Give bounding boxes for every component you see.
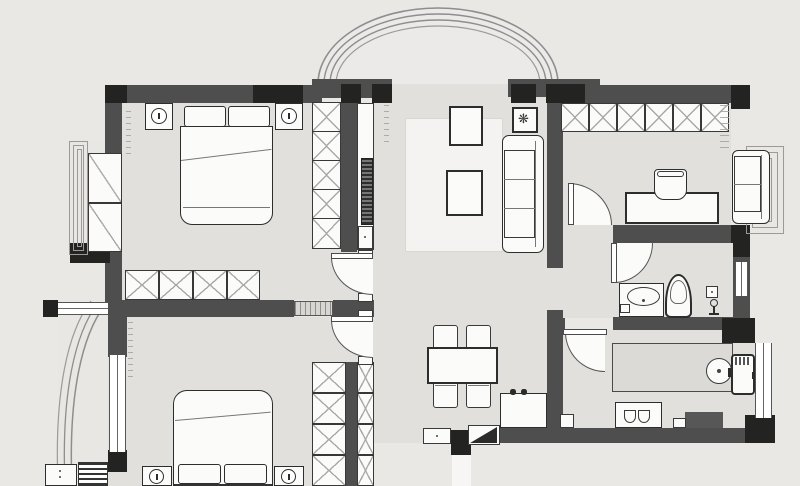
dimension-marks — [128, 322, 133, 377]
outlet-box — [673, 418, 686, 428]
wardrobe-cell — [159, 270, 193, 300]
bay-cabinet-cell — [88, 153, 122, 203]
wardrobe-cell — [312, 218, 341, 249]
door-leaf-kitchen — [563, 329, 607, 335]
cabinet-dot — [59, 476, 61, 478]
control-dot — [711, 291, 713, 293]
cushion-divider — [734, 184, 761, 185]
wall — [345, 362, 357, 486]
hall-cabinet-cell — [357, 424, 374, 455]
column — [43, 300, 58, 317]
wardrobe-cell — [312, 424, 346, 455]
shoe-cabinet — [45, 464, 77, 486]
cushion-divider — [504, 208, 535, 209]
tap-icon — [510, 389, 516, 395]
column — [745, 415, 775, 443]
bed-master — [180, 126, 273, 225]
hall-cabinet-cell — [357, 362, 374, 393]
headboard-line — [174, 484, 272, 486]
wardrobe-cell — [561, 103, 589, 132]
wardrobe-cell — [312, 102, 341, 132]
window — [735, 262, 748, 296]
cushion-divider — [504, 179, 535, 180]
column — [108, 450, 127, 472]
sink-basin — [627, 287, 660, 306]
table-lamp-icon — [281, 469, 296, 484]
sofa-backrest-line — [535, 141, 536, 247]
wall — [108, 300, 294, 317]
column — [733, 243, 750, 257]
radiator — [78, 462, 108, 486]
column — [511, 84, 536, 103]
door-leaf-study — [568, 183, 574, 225]
wall — [341, 103, 357, 252]
hall-cabinet-cell — [357, 455, 374, 486]
console-table — [449, 106, 483, 146]
balcony-arc-top — [305, 0, 575, 90]
door-leaf-bathroom — [611, 243, 617, 283]
hall-cabinet-cell — [357, 393, 374, 424]
door-leaf-bedroom2 — [331, 316, 373, 322]
wardrobe-cell — [312, 131, 341, 161]
wall — [108, 317, 127, 357]
grille-vent — [294, 301, 333, 316]
pillow — [178, 464, 221, 484]
tap-icon — [521, 389, 527, 395]
bay-window — [77, 149, 82, 247]
coffee-table — [446, 170, 483, 216]
desk-chair-backrest — [657, 171, 684, 177]
wardrobe-cell — [312, 189, 341, 219]
door-leaf-bedroom1 — [331, 253, 373, 259]
wardrobe-cell — [645, 103, 673, 132]
utility-sink-counter — [500, 393, 547, 428]
wall — [547, 310, 563, 430]
pillow — [224, 464, 267, 484]
column — [253, 85, 303, 103]
column — [546, 84, 585, 103]
dark-counter — [685, 412, 723, 428]
column — [722, 318, 755, 343]
chair-seat-line — [435, 385, 456, 386]
wardrobe-cell — [125, 270, 159, 300]
table-lamp-icon — [149, 469, 164, 484]
window — [109, 355, 126, 452]
wardrobe-cell — [193, 270, 227, 300]
column — [372, 84, 392, 103]
entry-path — [452, 455, 471, 486]
wall — [585, 85, 750, 103]
dimension-marks — [720, 104, 729, 148]
refrigerator-vent — [735, 357, 751, 365]
sink-drain — [717, 369, 721, 373]
mat-dot — [436, 435, 438, 437]
wall — [470, 428, 760, 443]
column — [105, 85, 127, 103]
window — [755, 343, 772, 418]
bay-cabinet-cell — [88, 203, 122, 252]
burner — [638, 410, 650, 423]
cell-knob — [364, 236, 366, 238]
pillow — [184, 106, 226, 127]
window — [58, 302, 108, 315]
plant-icon: ❋ — [518, 113, 529, 126]
cabinet-dot — [59, 470, 61, 472]
wardrobe-cell — [312, 455, 346, 486]
column — [341, 84, 361, 103]
blanket-fold-line — [183, 207, 270, 208]
wardrobe-cell — [589, 103, 617, 132]
outlet-box — [560, 414, 574, 428]
wall — [613, 317, 733, 330]
dining-table — [427, 347, 498, 384]
soap-tray — [620, 304, 630, 313]
wardrobe-cell — [312, 393, 346, 424]
wardrobe-cell — [673, 103, 701, 132]
wall-tv — [361, 158, 373, 225]
table-lam p-icon — [281, 108, 297, 124]
sofa-seat-cushions — [504, 150, 535, 238]
wall — [613, 225, 750, 243]
wardrobe-cell — [617, 103, 645, 132]
pillow — [228, 106, 270, 127]
shower-base — [709, 313, 719, 315]
wardrobe-cell — [312, 160, 341, 190]
shower-pole — [713, 306, 715, 313]
drain-dot — [642, 299, 645, 302]
wardrobe-cell — [312, 362, 346, 393]
dimension-marks — [126, 106, 131, 154]
table-lamp-icon — [151, 108, 167, 124]
floor-plan: ❋ — [0, 0, 800, 486]
dimension-marks — [384, 100, 389, 142]
refrigerator-handle — [752, 372, 755, 379]
wall — [547, 225, 563, 268]
wardrobe-cell — [227, 270, 260, 300]
chair-seat-line — [468, 385, 489, 386]
loveseat-backrest-line — [761, 155, 762, 219]
column — [731, 85, 750, 109]
burner — [624, 410, 636, 423]
